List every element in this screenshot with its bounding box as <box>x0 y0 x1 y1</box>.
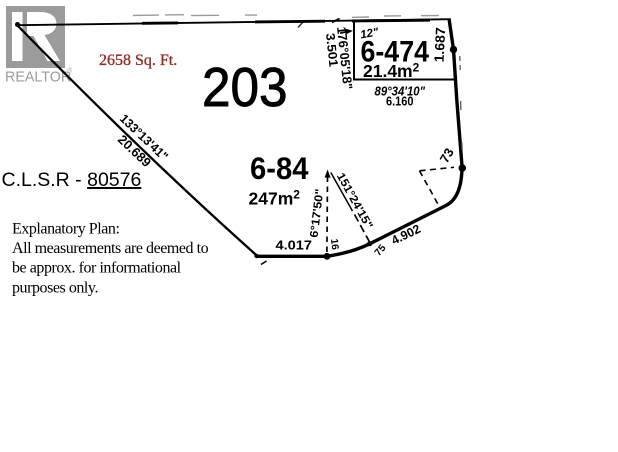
svg-text:1.687: 1.687 <box>432 27 449 63</box>
svg-text:203: 203 <box>202 57 288 118</box>
svg-text:REALTOR: REALTOR <box>5 69 71 85</box>
svg-text:2658 Sq. Ft.: 2658 Sq. Ft. <box>99 52 177 69</box>
svg-text:21.4m2: 21.4m2 <box>363 61 420 82</box>
svg-text:16: 16 <box>328 238 340 251</box>
svg-text:4.017: 4.017 <box>276 238 313 253</box>
svg-text:C.L.S.R - 80576: C.L.S.R - 80576 <box>2 169 142 191</box>
svg-text:®: ® <box>68 68 73 75</box>
svg-text:6-84: 6-84 <box>250 150 309 186</box>
svg-text:247m2: 247m2 <box>249 188 301 209</box>
svg-text:6.160: 6.160 <box>386 95 414 109</box>
